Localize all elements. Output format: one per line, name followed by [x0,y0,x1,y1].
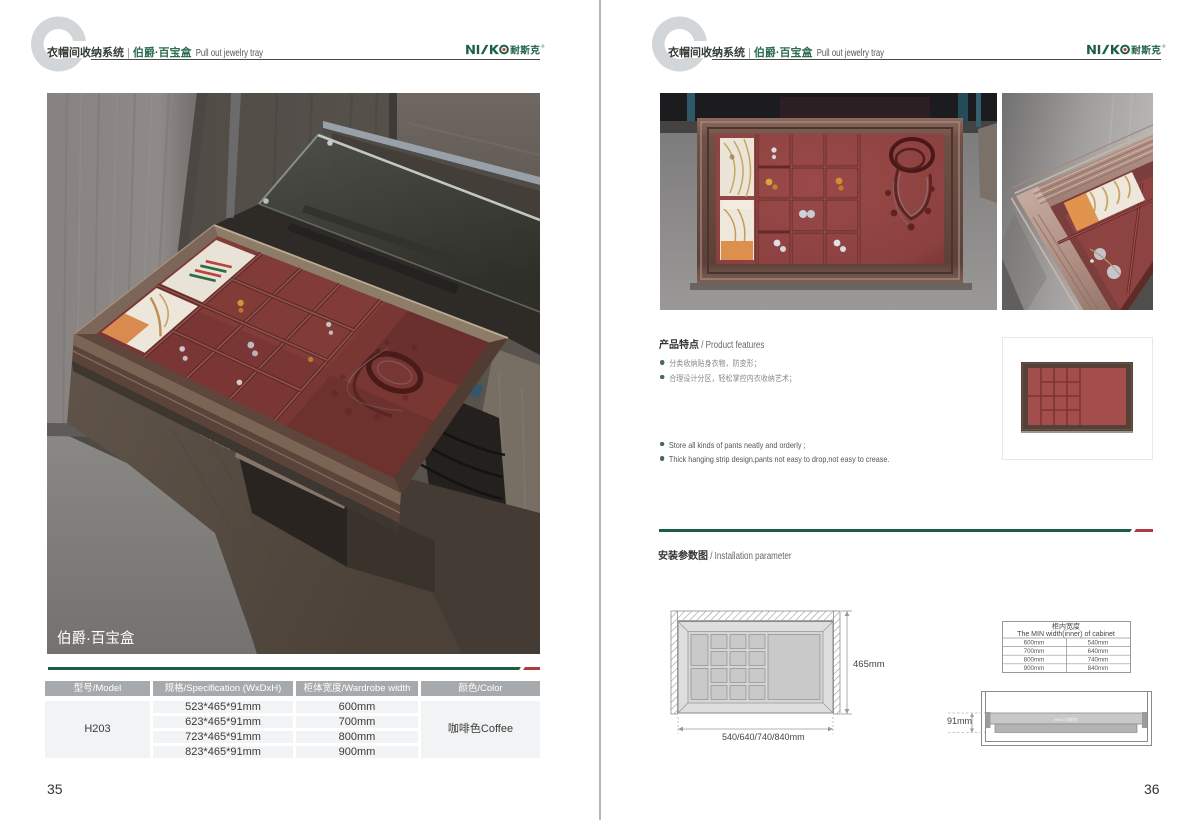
svg-text:540/640/740/840mm: 540/640/740/840mm [722,732,805,742]
svg-text:740mm: 740mm [1088,657,1109,664]
svg-text:540mm: 540mm [1088,639,1109,646]
svg-text:NI/KO 耐斯克: NI/KO 耐斯克 [1054,716,1078,722]
svg-text:800mm: 800mm [1024,657,1045,664]
svg-text:柜内宽度: 柜内宽度 [1052,622,1080,631]
svg-text:600mm: 600mm [1024,639,1045,646]
svg-text:®: ® [1162,44,1165,49]
svg-text:The MIN width(inner) of cabine: The MIN width(inner) of cabinet [1017,631,1115,638]
svg-text:耐斯克: 耐斯克 [510,44,540,55]
svg-text:91mm: 91mm [947,716,972,726]
svg-text:900mm: 900mm [1024,665,1045,672]
svg-text:840mm: 840mm [1088,665,1109,672]
svg-text:700mm: 700mm [1024,648,1045,655]
svg-text:伯爵·百宝盒: 伯爵·百宝盒 [57,630,135,647]
svg-text:®: ® [541,44,544,49]
svg-text:640mm: 640mm [1088,648,1109,655]
svg-text:耐斯克: 耐斯克 [1131,44,1161,55]
svg-text:465mm: 465mm [853,659,885,670]
